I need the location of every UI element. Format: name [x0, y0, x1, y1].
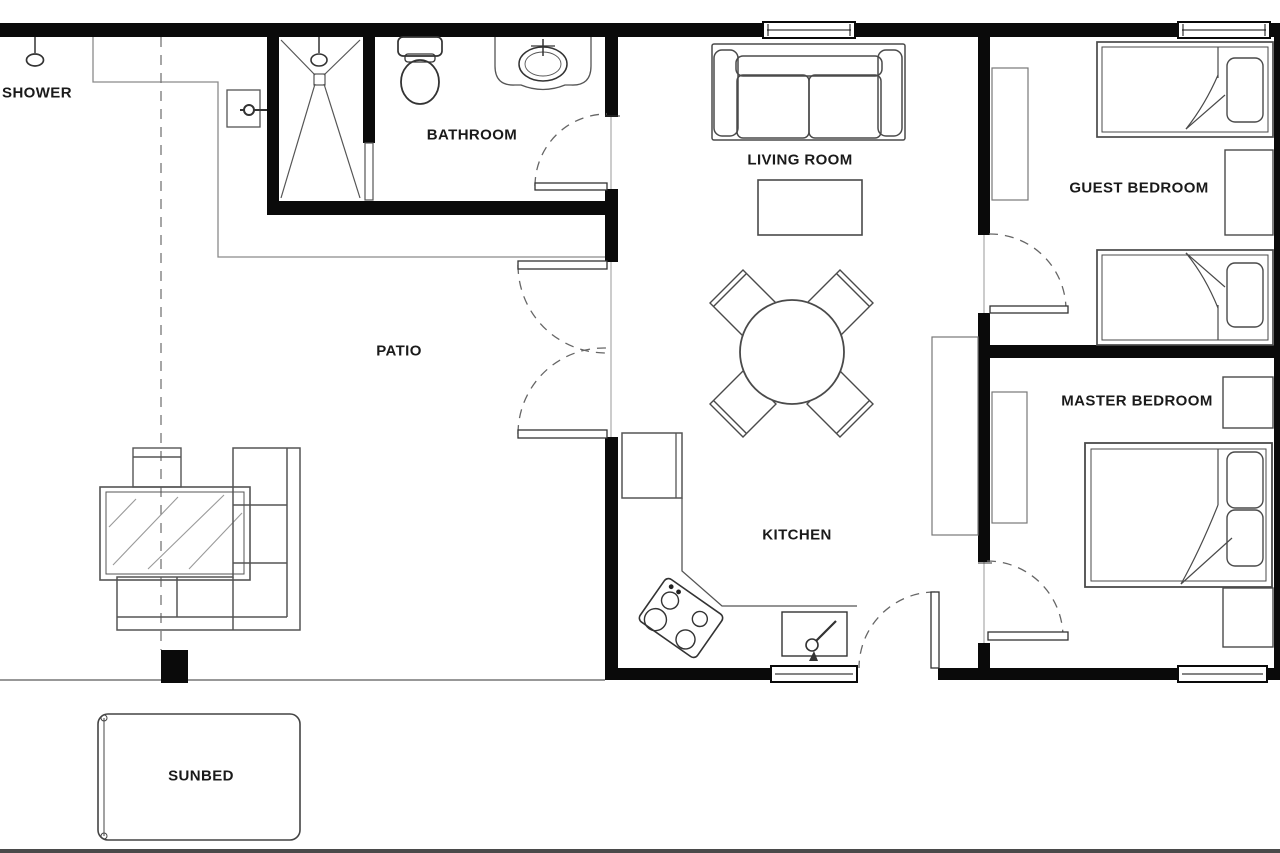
glass-table-icon	[100, 487, 250, 580]
room-label-kitchen: KITCHEN	[762, 527, 831, 544]
patio-french-door-top	[518, 261, 607, 353]
master-bedroom-furniture	[992, 377, 1273, 647]
room-label-sunbed: SUNBED	[168, 768, 234, 785]
kitchen-exterior-door	[859, 592, 939, 668]
room-label-living-room: LIVING ROOM	[747, 152, 852, 169]
room-label-bathroom: BATHROOM	[427, 127, 517, 144]
dining-set	[710, 270, 873, 437]
shower-head-icon	[311, 54, 327, 66]
kitchen-cabinet	[622, 433, 682, 498]
doors	[365, 114, 1068, 668]
pillow-icon	[1227, 58, 1263, 122]
room-label-patio: PATIO	[376, 343, 422, 360]
room-label-master-bedroom: MASTER BEDROOM	[1061, 393, 1212, 410]
patio-boundary	[93, 37, 605, 257]
room-label-guest-bedroom: GUEST BEDROOM	[1069, 180, 1208, 197]
kitchen-window	[771, 666, 857, 682]
floor-plan-drawing	[0, 0, 1280, 853]
nightstand-icon	[1223, 588, 1273, 647]
bathroom-door	[535, 114, 607, 190]
guest-bedroom-door	[989, 234, 1068, 313]
sofa-icon	[712, 44, 905, 140]
floor-plan: SHOWER BATHROOM PATIO LIVING ROOM KITCHE…	[0, 0, 1280, 853]
living-room-window	[763, 22, 855, 38]
kitchen-sink-icon	[782, 612, 847, 661]
stove-icon	[637, 577, 725, 661]
room-label-shower: SHOWER	[2, 85, 72, 102]
kitchen-counter	[622, 433, 857, 606]
pillow-icon	[1227, 263, 1263, 327]
walls	[0, 23, 1280, 680]
patio-french-door-bottom	[518, 348, 607, 438]
pillow-icon	[1227, 452, 1263, 508]
outdoor-shower-head-icon	[27, 37, 44, 66]
wardrobe-icon	[992, 392, 1027, 523]
post-icon	[161, 650, 188, 683]
toilet-icon	[398, 37, 442, 104]
nightstand-icon	[1223, 377, 1273, 428]
coffee-table-icon	[758, 180, 862, 235]
master-bedroom-door	[987, 561, 1068, 640]
vanity-sink-icon	[495, 37, 591, 90]
shower-stall-door	[365, 143, 373, 200]
double-bed-icon	[1085, 443, 1272, 587]
wardrobe-icon	[992, 68, 1028, 200]
master-bedroom-window	[1178, 666, 1267, 682]
shower-drain-icon	[314, 74, 325, 85]
kitchen-tall-cabinet	[932, 337, 978, 535]
shower-valve-icon	[227, 90, 267, 127]
shower-stall	[281, 37, 360, 198]
single-bed-icon	[1097, 42, 1273, 137]
patio-stool-icon	[133, 448, 181, 487]
image-bottom-border	[0, 849, 1280, 853]
nightstand-icon	[1225, 150, 1273, 235]
dining-table-icon	[740, 300, 844, 404]
sectional-sofa-icon	[117, 448, 300, 630]
single-bed-icon	[1097, 250, 1273, 345]
guest-bedroom-window	[1178, 22, 1270, 38]
pillow-icon	[1227, 510, 1263, 566]
